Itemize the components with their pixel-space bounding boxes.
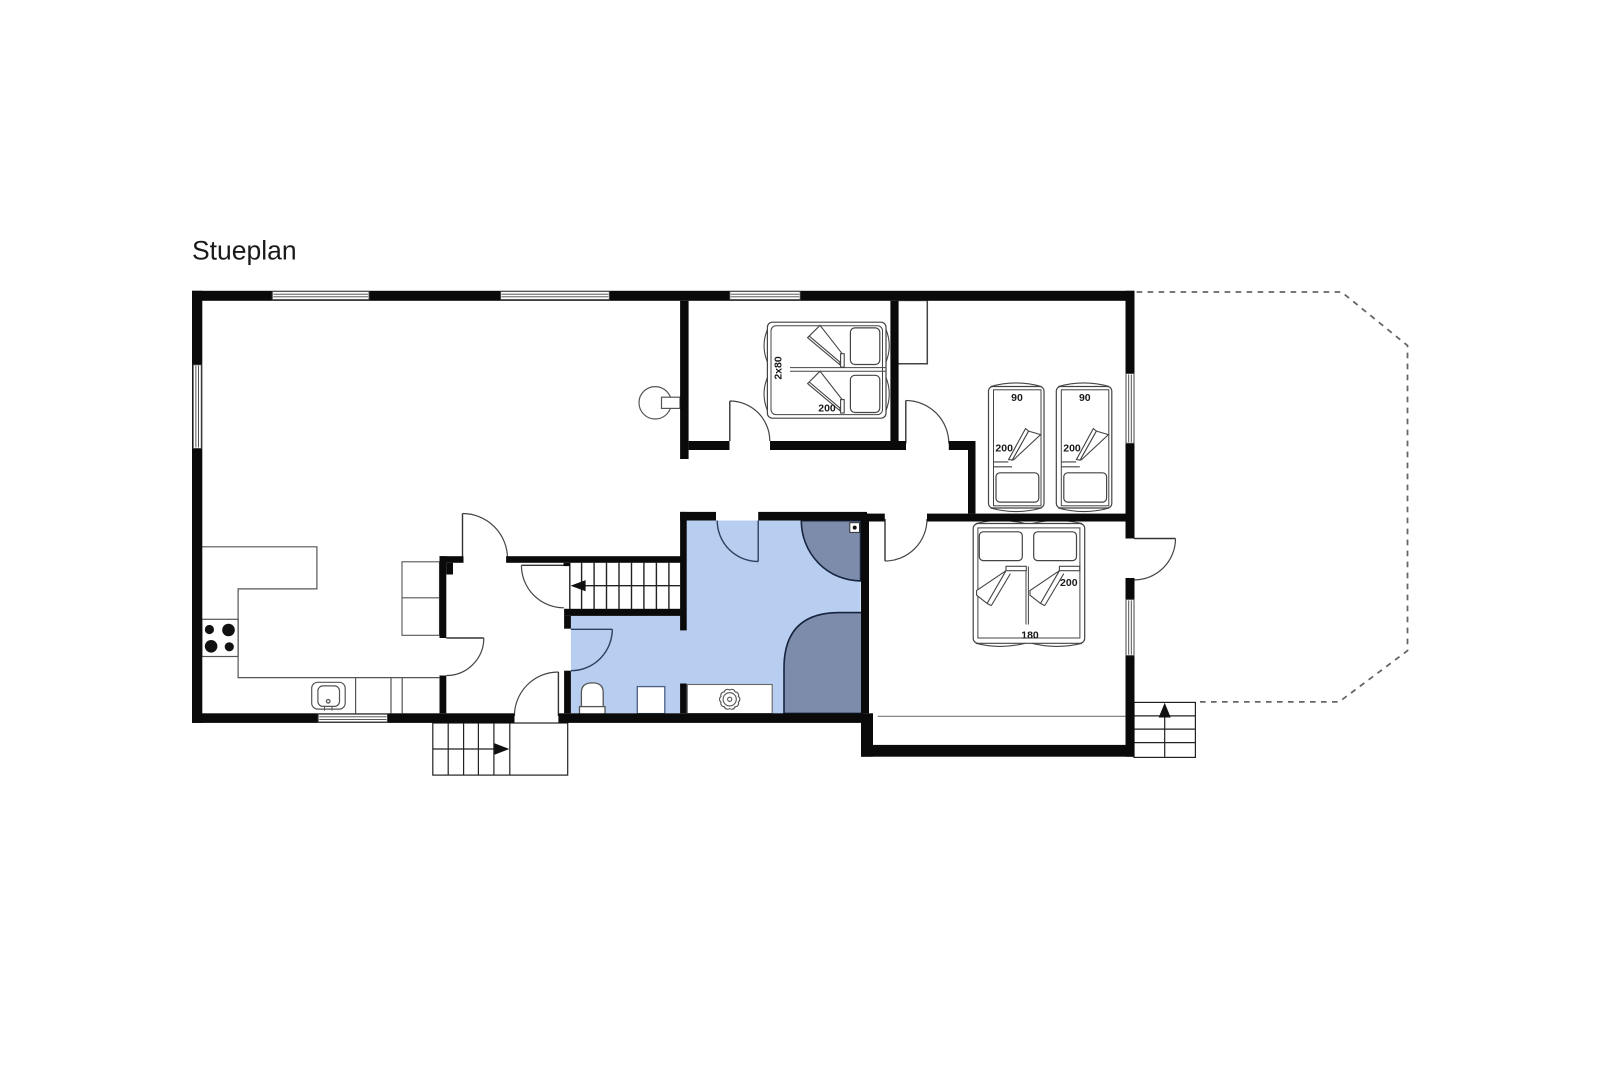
svg-text:200: 200 xyxy=(1060,577,1078,589)
svg-text:90: 90 xyxy=(1079,392,1091,404)
svg-text:2x80: 2x80 xyxy=(772,356,784,380)
svg-text:200: 200 xyxy=(1063,442,1081,454)
svg-text:Stueplan: Stueplan xyxy=(192,236,297,266)
svg-text:90: 90 xyxy=(1011,392,1023,404)
svg-text:180: 180 xyxy=(1021,629,1039,641)
svg-text:200: 200 xyxy=(995,442,1013,454)
svg-text:200: 200 xyxy=(818,403,836,415)
